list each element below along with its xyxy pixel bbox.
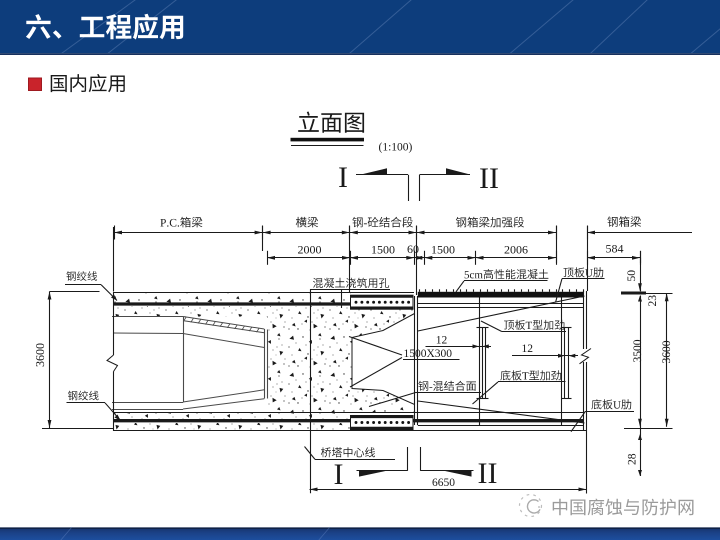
svg-text:12: 12 bbox=[522, 343, 534, 355]
svg-text:60: 60 bbox=[407, 242, 419, 256]
svg-text:II: II bbox=[478, 457, 498, 490]
svg-text:6650: 6650 bbox=[432, 477, 455, 489]
svg-text:2006: 2006 bbox=[504, 243, 528, 257]
svg-text:II: II bbox=[479, 162, 499, 195]
svg-text:1500X300: 1500X300 bbox=[404, 348, 453, 360]
svg-text:1500: 1500 bbox=[371, 243, 395, 257]
svg-text:1500: 1500 bbox=[431, 243, 455, 257]
svg-text:I: I bbox=[334, 458, 344, 491]
svg-text:(1:100): (1:100) bbox=[379, 142, 413, 154]
svg-text:I: I bbox=[338, 161, 348, 194]
svg-text:12: 12 bbox=[436, 335, 448, 347]
svg-text:584: 584 bbox=[606, 242, 624, 256]
svg-text:2000: 2000 bbox=[298, 243, 322, 257]
